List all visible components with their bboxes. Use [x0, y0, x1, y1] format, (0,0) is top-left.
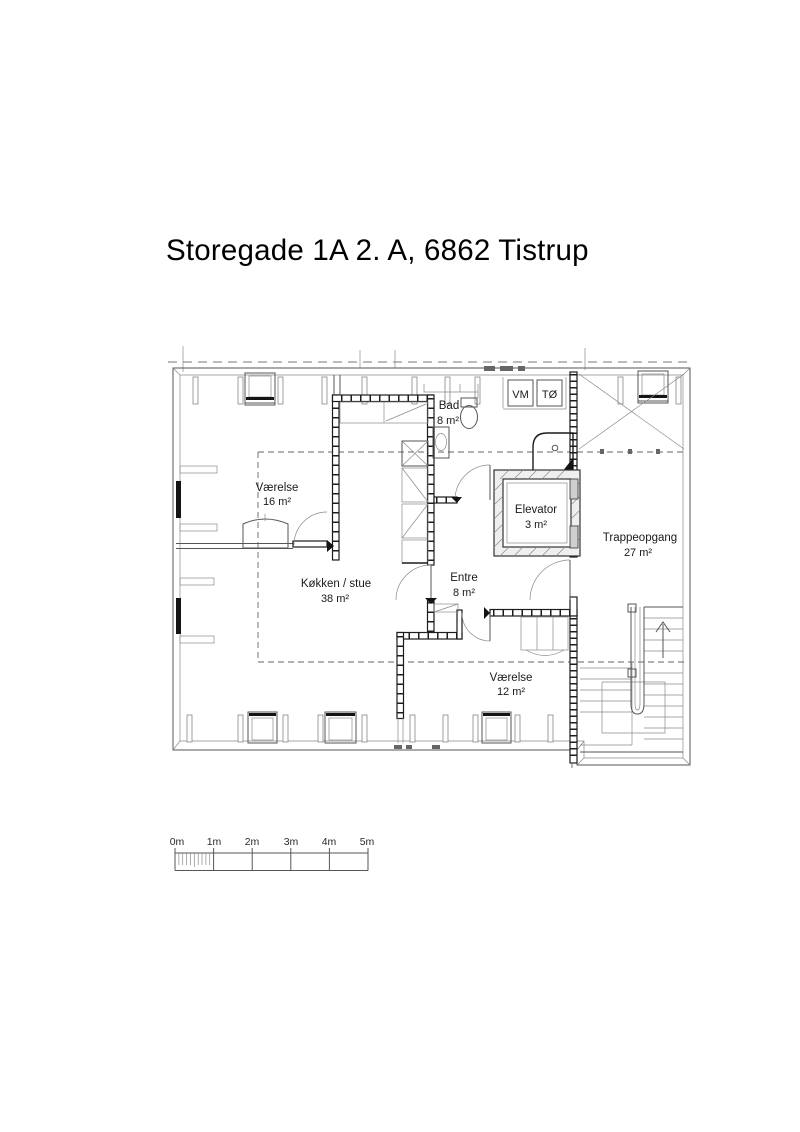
scale-label-1m: 1m [207, 836, 222, 848]
roof-rafters-bottom [187, 715, 553, 742]
door-vaerelse12 [462, 607, 490, 641]
room-label-vaerelse16-area: 16 m² [263, 496, 291, 508]
void-cross [579, 374, 684, 449]
room-label-bad-area: 8 m² [437, 415, 459, 427]
stair-railing [628, 604, 644, 714]
skylight-icon-bottom-left [248, 712, 277, 743]
dryer-label: TØ [542, 389, 558, 401]
scale-label-4m: 4m [322, 836, 337, 848]
sink-icon [433, 427, 449, 458]
room-label-elevator-area: 3 m² [525, 519, 547, 531]
door-entrance [530, 560, 570, 600]
room-label-entre-area: 8 m² [453, 587, 475, 599]
room-label-vaerelse16-name: Værelse [256, 482, 299, 494]
room-labels: Værelse 16 m² Bad 8 m² Elevator 3 m² Tra… [256, 400, 678, 698]
room-label-elevator-name: Elevator [515, 504, 557, 516]
floor-plan-drawing: VM TØ [0, 0, 800, 1132]
skylight-icon-bottom-right [482, 712, 511, 743]
stairwell [579, 374, 684, 752]
door-koekken [396, 565, 437, 604]
scale-label-2m: 2m [245, 836, 260, 848]
room-label-entre-name: Entre [450, 572, 478, 584]
wardrobe-vaerelse12 [521, 617, 568, 656]
room-label-koekken-name: Køkken / stue [301, 578, 371, 590]
scale-bar-minor-ticks [179, 853, 210, 867]
scale-label-5m: 5m [360, 836, 375, 848]
dresser-vaerelse16 [243, 514, 288, 548]
scale-bar: 0m 1m 2m 3m 4m 5m [170, 836, 375, 871]
shower-icon [533, 433, 573, 472]
room-label-bad-name: Bad [439, 400, 459, 412]
skylight-icon-top-right [638, 371, 668, 403]
room-label-koekken-area: 38 m² [321, 593, 349, 605]
door-bad [451, 465, 490, 503]
floor-plan-page: Storegade 1A 2. A, 6862 Tistrup [0, 0, 800, 1132]
room-label-trappeopgang-area: 27 m² [624, 547, 652, 559]
scale-label-3m: 3m [284, 836, 299, 848]
skylight-icon-bottom-middle [325, 712, 356, 743]
ceiling-height-dashed-lines [258, 374, 686, 768]
left-wall-ledges [176, 466, 217, 643]
room-label-vaerelse12-area: 12 m² [497, 686, 525, 698]
washing-machine-label: VM [512, 389, 529, 401]
scale-label-0m: 0m [170, 836, 185, 848]
coat-rack-entre [434, 604, 458, 612]
interior-walls [176, 372, 577, 763]
laundry-niche: VM TØ [508, 380, 562, 406]
room-label-vaerelse12-name: Værelse [490, 672, 533, 684]
skylight-icon-top-left [245, 373, 275, 405]
kitchen-counter-icons [340, 402, 428, 563]
room-label-trappeopgang-name: Trappeopgang [603, 532, 677, 544]
door-vaerelse16 [293, 512, 334, 552]
